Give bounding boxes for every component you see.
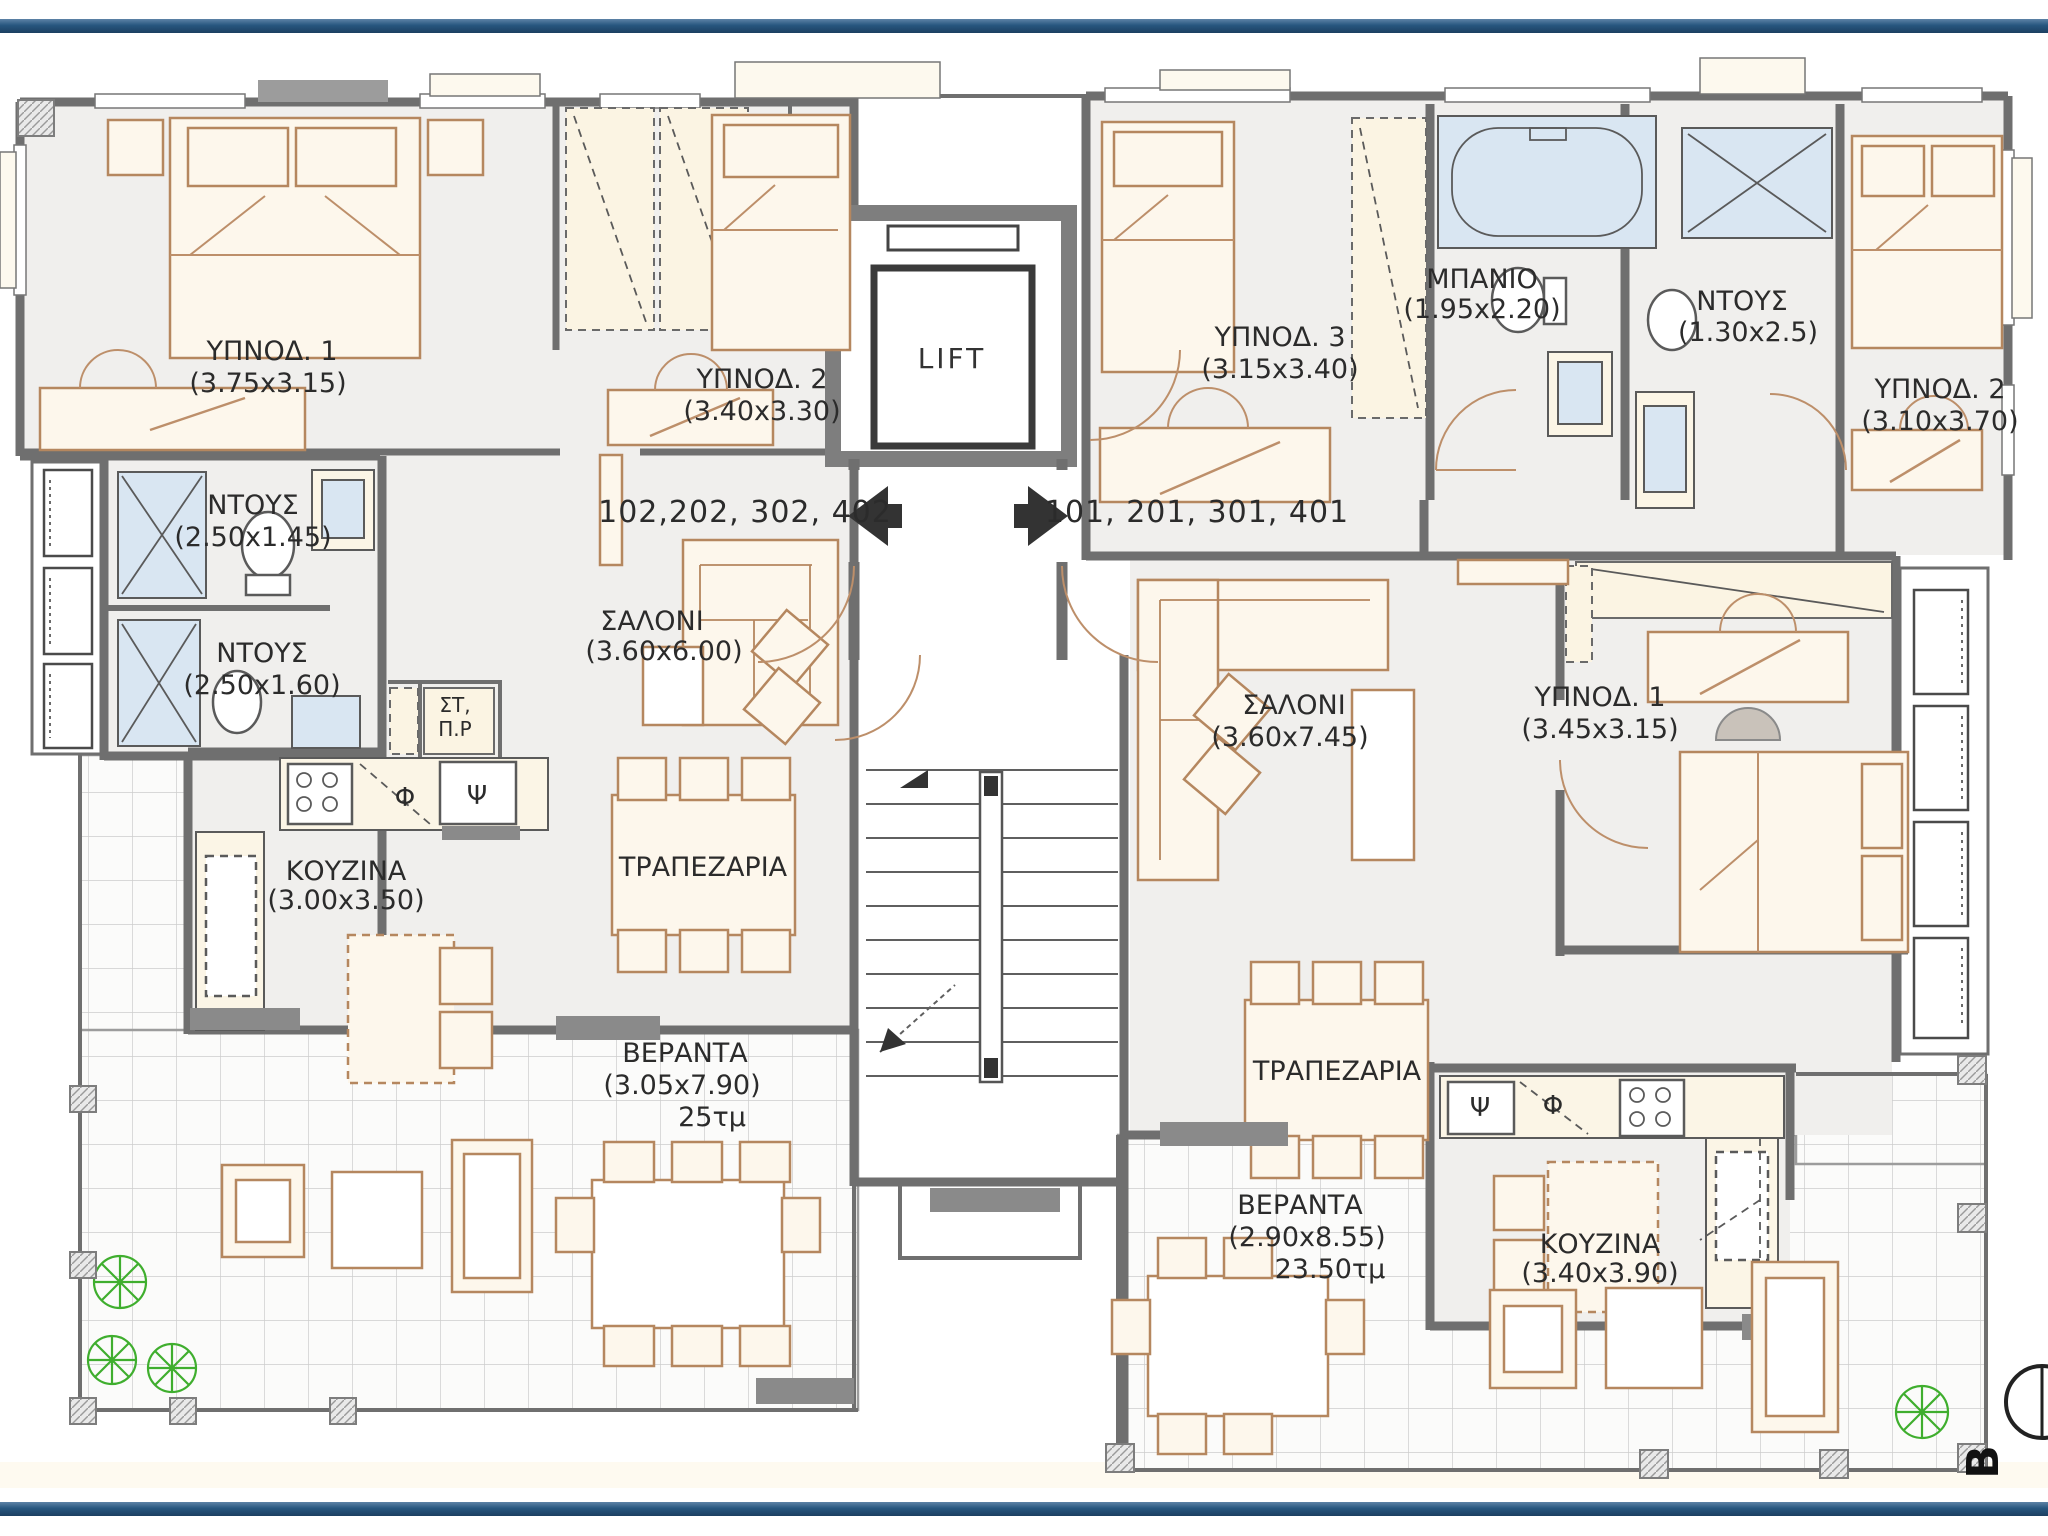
left-sink-symbol: Ψ	[467, 781, 487, 811]
right-washer-symbol: Φ	[1543, 1091, 1563, 1121]
right-veranda-dims: (2.90x8.55)	[1228, 1222, 1385, 1253]
left-laundry-line2: Π.Ρ	[438, 717, 471, 741]
left-bedroom2-label: ΥΠΝΟΔ. 2	[695, 364, 827, 395]
left-ac-units	[44, 470, 92, 748]
right-ac-units	[1914, 590, 1968, 1038]
right-bedroom3-label: ΥΠΝΟΔ. 3	[1213, 322, 1345, 353]
right-dining-label: ΤΡΑΠΕΖΑΡΙΑ	[1252, 1056, 1422, 1087]
left-bedroom1-dims: (3.75x3.15)	[189, 368, 346, 399]
right-shower-dims: (1.30x2.5)	[1678, 317, 1818, 348]
right-bedroom2-dims: (3.10x3.70)	[1861, 406, 2018, 437]
right-kitchen-dims: (3.40x3.90)	[1521, 1258, 1678, 1289]
floor-plan-page: ΥΠΝΟΔ. 1 (3.75x3.15) ΥΠΝΟΔ. 2 (3.40x3.30…	[0, 0, 2048, 1536]
left-shower2-label: ΝΤΟΥΣ	[216, 638, 308, 669]
right-unit-numbers: 101, 201, 301, 401	[1045, 495, 1349, 530]
left-bedroom2-dims: (3.40x3.30)	[683, 396, 840, 427]
right-bedroom1-dims: (3.45x3.15)	[1521, 714, 1678, 745]
right-bathroom-dims: (1.95x2.20)	[1403, 294, 1560, 325]
left-living-dims: (3.60x6.00)	[585, 636, 742, 667]
left-shower2-dims: (2.50x1.60)	[183, 670, 340, 701]
left-dining-label: ΤΡΑΠΕΖΑΡΙΑ	[618, 852, 788, 883]
right-veranda-plant	[1896, 1386, 1948, 1438]
right-bathroom-label: ΜΠΑΝΙΟ	[1426, 264, 1537, 295]
right-bedroom3-dims: (3.15x3.40)	[1201, 354, 1358, 385]
right-kitchen-label: ΚΟΥΖΙΝΑ	[1540, 1229, 1661, 1260]
left-washer-symbol: Φ	[395, 783, 415, 813]
right-shower-label: ΝΤΟΥΣ	[1696, 286, 1788, 317]
left-shower1-label: ΝΤΟΥΣ	[207, 490, 299, 521]
right-bedroom1-label: ΥΠΝΟΔ. 1	[1533, 682, 1665, 713]
lift-label: LIFT	[918, 342, 987, 375]
left-veranda-area: 25τμ	[678, 1102, 746, 1133]
right-living-label: ΣΑΛΟΝΙ	[1242, 690, 1345, 721]
right-sink-symbol: Ψ	[1470, 1093, 1490, 1123]
left-kitchen-dims: (3.00x3.50)	[267, 885, 424, 916]
right-veranda-area: 23.50τμ	[1275, 1254, 1386, 1285]
left-living-label: ΣΑΛΟΝΙ	[600, 606, 703, 637]
left-kitchen-label: ΚΟΥΖΙΝΑ	[286, 856, 407, 887]
right-living-dims: (3.60x7.45)	[1211, 722, 1368, 753]
left-veranda-label: ΒΕΡΑΝΤΑ	[622, 1038, 748, 1069]
stairs	[835, 655, 1118, 1258]
left-veranda-dims: (3.05x7.90)	[603, 1070, 760, 1101]
left-shower1-dims: (2.50x1.45)	[174, 522, 331, 553]
left-laundry-line1: ΣΤ,	[439, 693, 470, 717]
compass-letter: B	[1958, 1445, 2009, 1479]
floor-plan-drawing: ΥΠΝΟΔ. 1 (3.75x3.15) ΥΠΝΟΔ. 2 (3.40x3.30…	[0, 0, 2048, 1536]
right-veranda-label: ΒΕΡΑΝΤΑ	[1237, 1190, 1363, 1221]
right-bedroom2-label: ΥΠΝΟΔ. 2	[1873, 374, 2005, 405]
left-unit-numbers: 102,202, 302, 402	[598, 495, 892, 530]
left-bedroom1-label: ΥΠΝΟΔ. 1	[205, 336, 337, 367]
